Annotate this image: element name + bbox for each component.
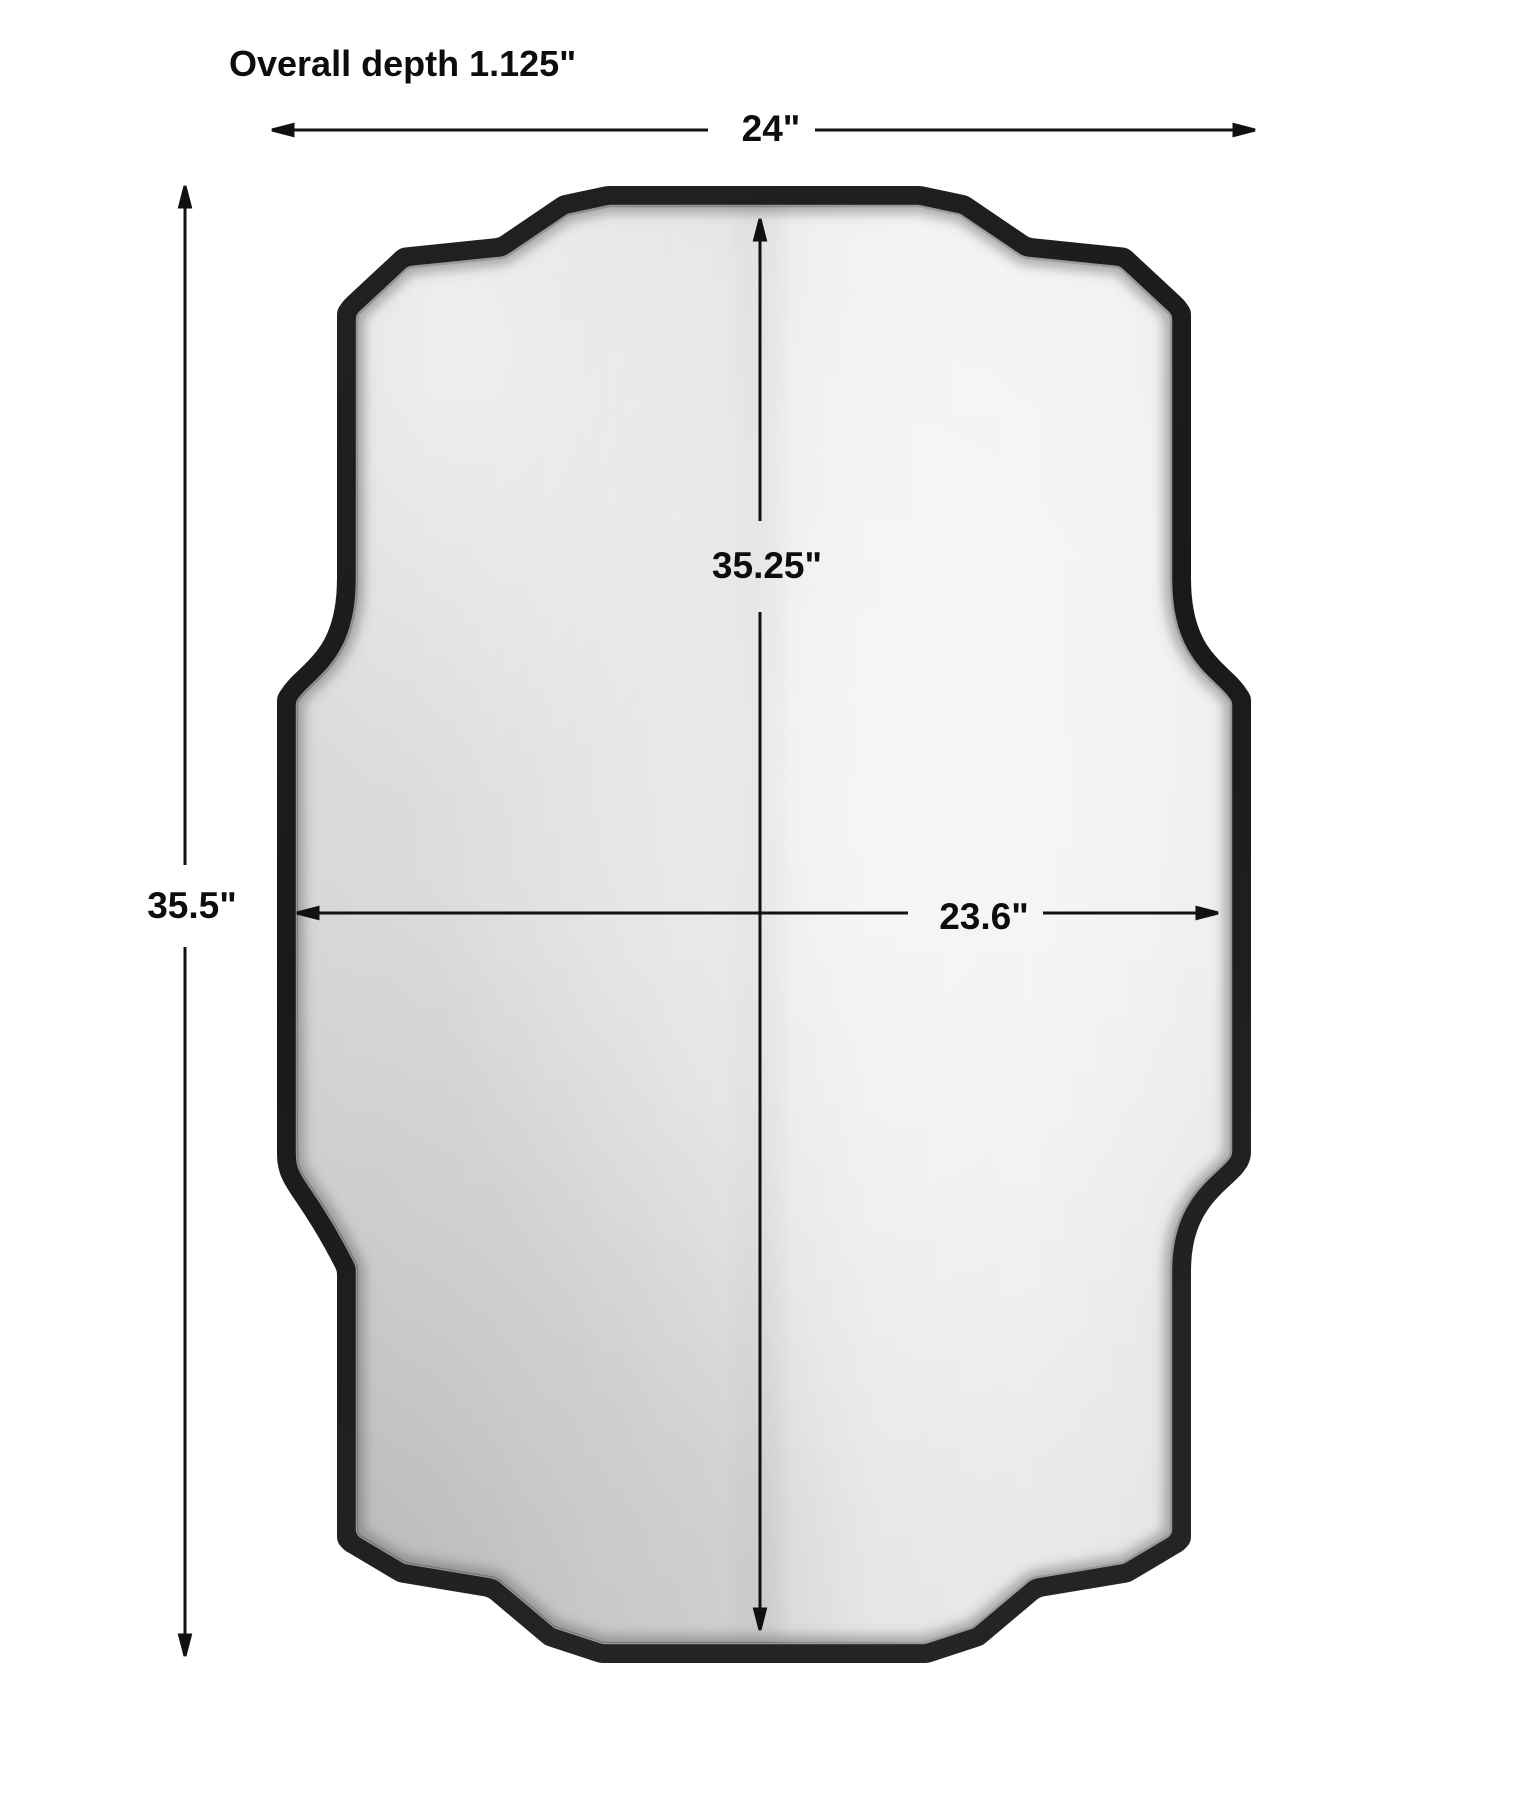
svg-text:Overall depth 1.125": Overall depth 1.125" xyxy=(229,43,576,84)
svg-text:35.5": 35.5" xyxy=(147,885,237,926)
svg-text:24": 24" xyxy=(742,108,801,149)
svg-text:35.25": 35.25" xyxy=(712,545,822,586)
svg-text:23.6": 23.6" xyxy=(939,896,1029,937)
